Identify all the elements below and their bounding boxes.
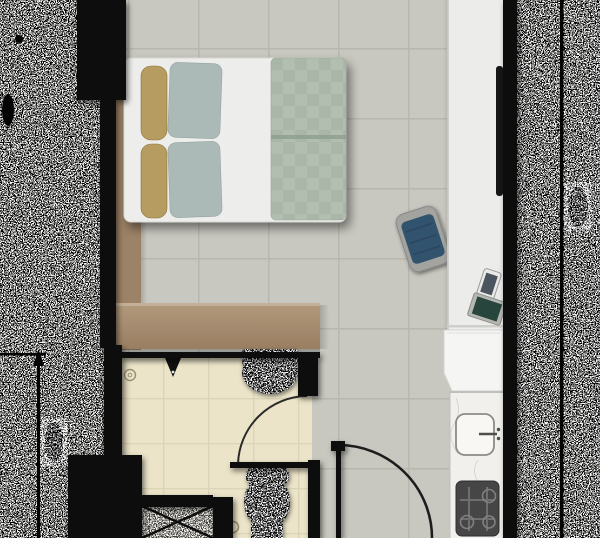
wall-right [503,0,517,538]
floor-plan-svg [0,0,600,538]
pillow-khaki-bottom [141,144,167,218]
wall-left-mid [100,100,116,348]
wall-bathroom-top [120,352,320,358]
noise-strip-right [517,0,600,538]
pillow-khaki-top [141,66,167,140]
wall-top-left-block [77,0,126,100]
wall-bathroom-right-upper [298,352,318,396]
refrigerator [444,330,503,391]
tv [496,66,503,196]
duvet-seam [271,135,346,139]
media-counter [443,0,507,391]
tray-dither [142,506,213,538]
wall-bathroom-left [104,345,122,457]
dimension-line-right [560,0,564,538]
kitchenette [449,391,503,538]
pillow-sage-top [168,62,223,139]
wardrobe-bar [116,303,320,349]
floor-plan-image [0,0,600,538]
wall-above-shower [142,495,213,507]
bathroom-door-leaf [230,462,309,468]
shower-tray [142,506,213,538]
entrance-door-leaf [336,445,341,538]
floor-drain-icon [125,370,136,381]
noise-blob [15,35,23,43]
wall-bottom-left-block [68,455,142,538]
wall-shower-divider [213,497,233,538]
pillow-sage-bottom [168,141,223,218]
wall-bathroom-right-lower [308,460,320,538]
dimension-line-left [37,360,40,538]
stove [456,481,499,536]
noise-blob [2,94,14,126]
bed [124,58,346,222]
